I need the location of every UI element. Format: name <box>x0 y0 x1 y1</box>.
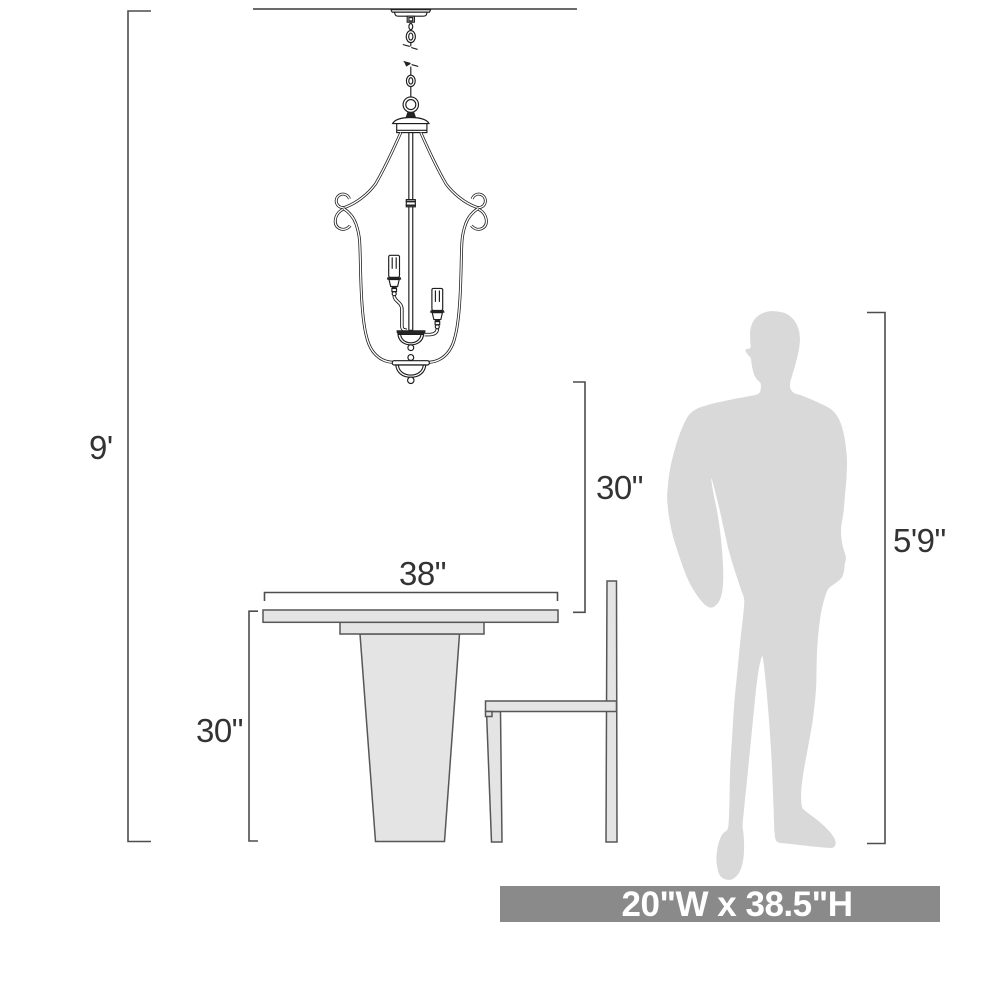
svg-text:30": 30" <box>196 712 243 749</box>
svg-text:9': 9' <box>89 429 113 466</box>
svg-text:20"W x 38.5"H: 20"W x 38.5"H <box>622 885 853 924</box>
svg-text:38": 38" <box>399 555 446 592</box>
svg-text:30": 30" <box>596 469 643 506</box>
svg-text:5'9": 5'9" <box>893 522 946 559</box>
